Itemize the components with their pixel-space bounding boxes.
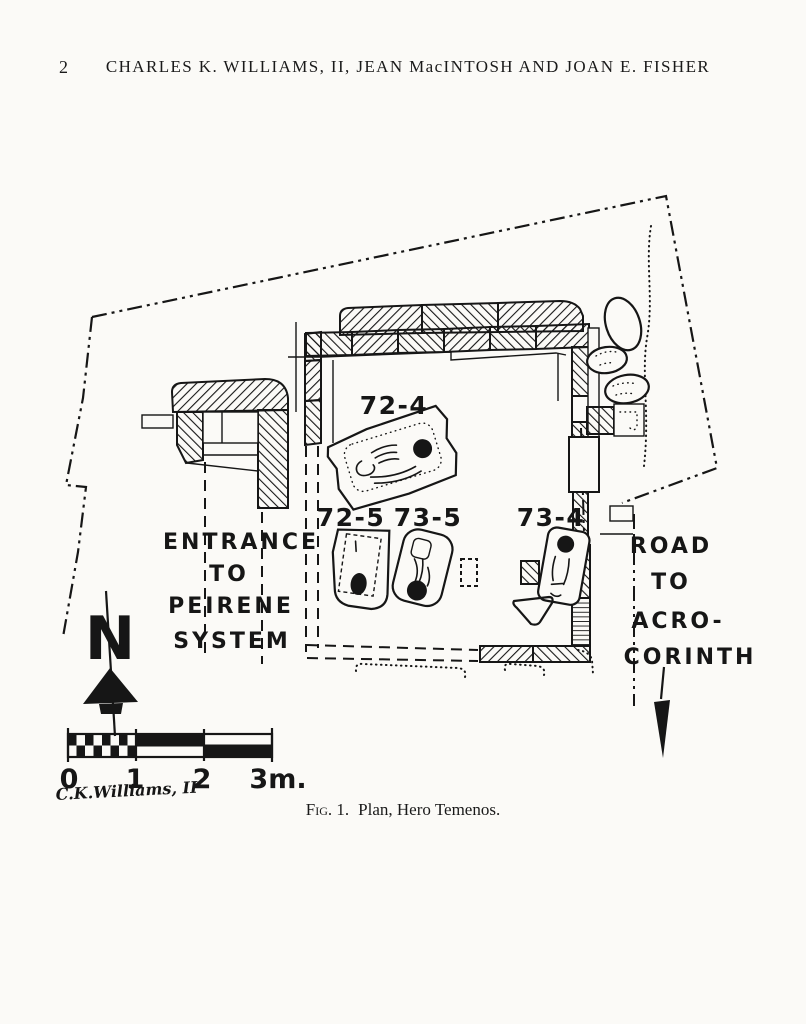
entrance-label-line3: PEIRENE: [168, 594, 294, 619]
journal-page: 2 CHARLES K. WILLIAMS, II, JEAN MacINTOS…: [0, 0, 806, 1024]
grave-72-5: 72-5: [317, 503, 397, 611]
entrance-label-line1: ENTRANCE: [163, 530, 319, 555]
grave-73-5: 73-5: [390, 503, 463, 609]
entrance-structure: [142, 379, 288, 664]
temenos-enclosure-walls: [288, 322, 590, 662]
hatched-block: [521, 561, 539, 584]
grave-73-4-label: 73-4: [517, 503, 586, 532]
road-label-line1: ROAD: [630, 534, 712, 559]
site-plan-figure: 72-4 72-5 73-5: [0, 0, 806, 1024]
scale-tick-3m: 3m.: [249, 764, 306, 795]
grave-72-4: 72-4: [323, 391, 465, 513]
entrance-to-peirene-label: ENTRANCE TO PEIRENE SYSTEM: [163, 530, 319, 654]
figure-caption-text: Plan, Hero Temenos.: [358, 800, 500, 819]
grave-72-4-label: 72-4: [360, 391, 429, 420]
north-letter: N: [85, 604, 135, 674]
road-label-line4: CORINTH: [624, 645, 757, 670]
entrance-label-line4: SYSTEM: [173, 629, 291, 654]
road-label-line3: ACRO-: [631, 609, 724, 634]
road-direction-arrow: [654, 667, 670, 758]
grave-72-5-label: 72-5: [317, 503, 386, 532]
figure-caption-label: Fig. 1.: [306, 800, 349, 819]
road-label-line2: TO: [651, 570, 691, 595]
north-arrow: N: [83, 591, 138, 736]
entrance-label-line2: TO: [209, 562, 249, 587]
robbed-block-outline: [461, 559, 477, 586]
road-to-acrocorinth-label: ROAD TO ACRO- CORINTH: [624, 534, 757, 758]
grave-73-4: 73-4: [517, 503, 591, 606]
road-edge-stipple-line: [644, 226, 651, 466]
figure-caption: Fig. 1.Plan, Hero Temenos.: [0, 800, 806, 820]
grave-73-5-label: 73-5: [394, 503, 463, 532]
